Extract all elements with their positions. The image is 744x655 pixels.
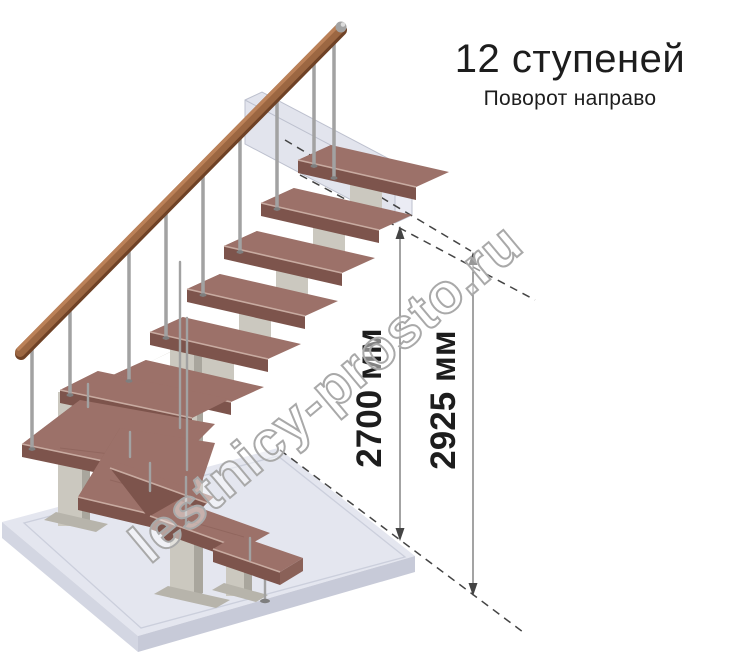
turn-direction-subtitle: Поворот направо [436,87,704,111]
title-block: 12 ступеней Поворот направо [436,36,704,111]
arrowhead-down [396,528,405,541]
steps-count-title: 12 ступеней [436,36,704,82]
arrowhead-down [469,583,478,596]
staircase-diagram: 2700 мм 2925 мм lestnicy-prosto.ru 12 ст… [0,0,744,655]
arrowhead-up [396,226,405,239]
dimension-label-2925: 2925 мм [424,330,463,469]
